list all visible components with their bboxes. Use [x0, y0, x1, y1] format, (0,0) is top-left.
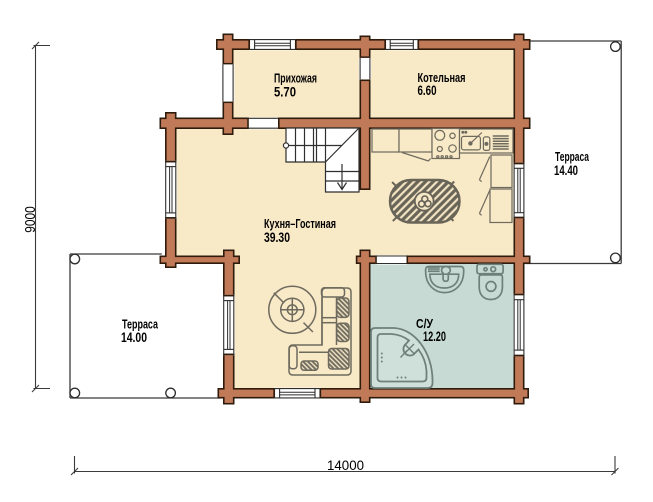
svg-text:39.30: 39.30	[264, 230, 290, 245]
svg-text:5.70: 5.70	[274, 85, 296, 100]
svg-text:14.40: 14.40	[554, 163, 578, 178]
svg-text:Прихожая: Прихожая	[274, 71, 317, 86]
svg-text:6.60: 6.60	[418, 83, 437, 98]
svg-text:Кухня–Гостиная: Кухня–Гостиная	[264, 216, 336, 231]
svg-text:9000: 9000	[22, 206, 39, 233]
svg-text:14000: 14000	[327, 457, 364, 473]
svg-text:14.00: 14.00	[121, 330, 147, 345]
svg-text:Терраса: Терраса	[555, 149, 589, 164]
svg-text:12.20: 12.20	[423, 329, 446, 344]
